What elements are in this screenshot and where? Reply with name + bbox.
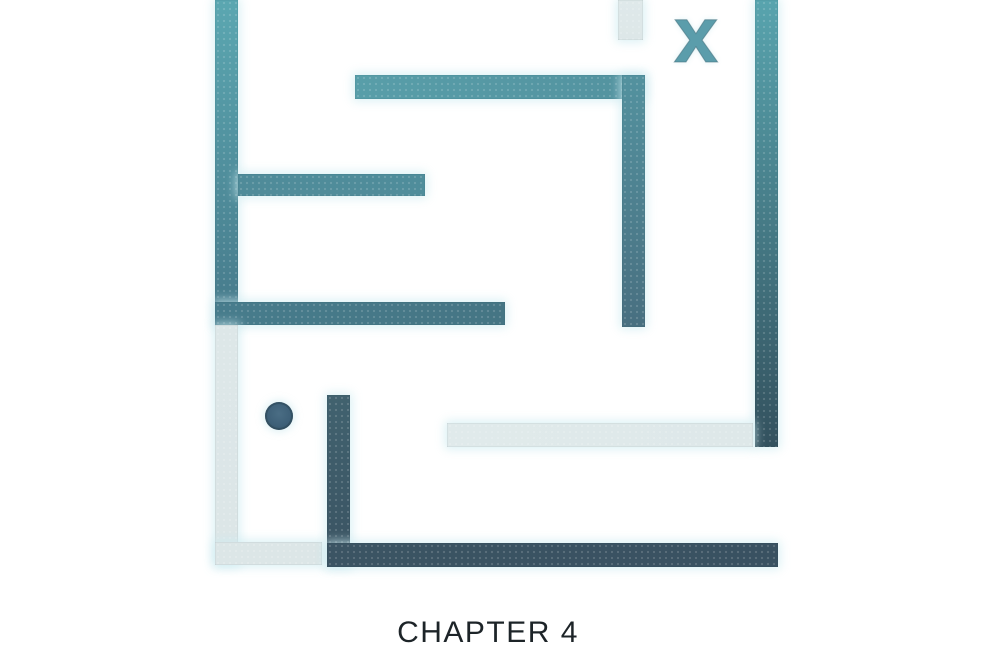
chapter-label: CHAPTER 4 bbox=[397, 616, 579, 650]
wall-mid-vertical bbox=[622, 75, 645, 327]
player-dot[interactable] bbox=[265, 402, 293, 430]
wall-gray-top-stub bbox=[618, 0, 643, 40]
wall-dark-vertical bbox=[327, 395, 350, 567]
game-screen: x CHAPTER 4 bbox=[0, 0, 1000, 667]
wall-mid-left-horizontal bbox=[238, 174, 425, 196]
goal-marker-x-icon: x bbox=[674, 0, 719, 75]
wall-bottom-horizontal bbox=[327, 543, 778, 567]
wall-top-horizontal bbox=[355, 75, 645, 99]
wall-lower-left-horizontal bbox=[215, 302, 505, 325]
wall-gray-left-foot bbox=[215, 542, 322, 565]
wall-gray-left-vertical bbox=[215, 325, 238, 565]
wall-left-vertical bbox=[215, 0, 238, 325]
maze bbox=[0, 0, 1000, 667]
wall-gray-mid-horizontal bbox=[447, 423, 753, 447]
wall-right-vertical bbox=[755, 0, 778, 447]
